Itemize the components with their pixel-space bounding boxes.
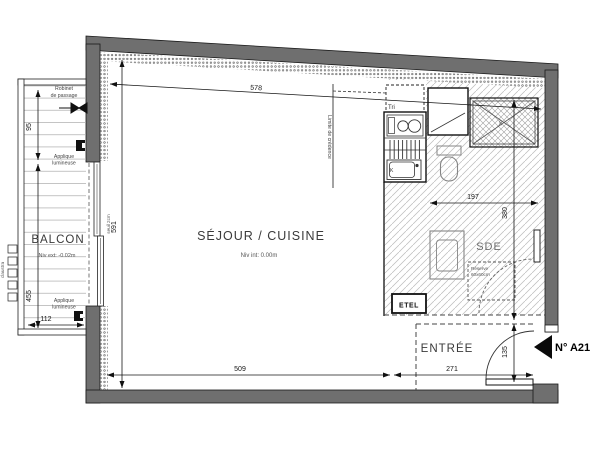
sejour-label: SÉJOUR / CUISINE [197,228,325,243]
balcony-label: BALCON [31,234,84,246]
claustra-label: claustra [0,262,5,279]
kitchen-block: Tri K [384,80,426,182]
balcony-rail-top [18,79,86,85]
balcony-rail-left [18,79,24,335]
corner-block [533,384,558,403]
credence-limit-label: Limite de crédence [326,115,332,159]
balcony-decking [24,85,86,329]
wall-light-top-label-line2: lumineuse [52,161,76,167]
balcony-rail-bottom [18,329,86,335]
wall-light-bottom-label-line2: lumineuse [52,305,76,311]
wall-light-top-label-line1: Applique [54,154,74,160]
duct-box [428,88,468,135]
dim-top: 578 [250,85,262,93]
entry-door-leaf [486,379,533,385]
dim-sde-depth: 380 [502,207,509,219]
faucet-icon [415,164,418,167]
etel-box: ETEL [392,294,426,313]
dim-entree: 271 [446,366,458,373]
dim-sde-width: 197 [467,194,479,201]
wall-light-top-icon [76,140,85,151]
balcony-level: Niv ext: -0.02m [39,253,76,259]
dim-sejour: 509 [234,366,246,373]
shower-dim-label: 90 [498,120,503,126]
bottom-wall [86,390,558,403]
left-wall-lower [86,306,100,403]
floor-plan: claustra BALCON Niv ext: -0.02m Robinet … [0,0,600,450]
sde-door-leaf [534,230,540,262]
dim-balcony-depth: 455 [26,290,33,302]
right-wall-end-cap [545,325,558,332]
sde-label: SDE [476,241,502,253]
unit-number-label: N° A21 [555,342,590,354]
dim-height: 591 [111,221,118,233]
wall-light-bottom-label-line1: Applique [54,298,74,304]
right-wall [545,70,558,332]
dim-balcony-seg: 95 [26,123,33,131]
valve-label-line1: Robinet [55,86,73,92]
dim-balcony-width: 112 [40,316,51,323]
waste-sorting-label: Tri [388,105,395,111]
entry-label: ENTRÉE [421,342,474,355]
etel-label: ETEL [399,303,419,310]
dim-door: 135 [502,346,509,358]
wall-light-bottom-icon [74,311,83,321]
insulation-left-lower [100,306,108,390]
sejour-level: Niv int: 0.00m [241,253,278,259]
valve-label-line2: de passage [51,93,78,99]
washing-machine-label-line1: Réserve [471,266,489,271]
left-wall-upper [86,44,100,162]
insulation-left-upper [100,61,108,161]
washing-machine-label-line2: 60x60cm [471,272,490,277]
